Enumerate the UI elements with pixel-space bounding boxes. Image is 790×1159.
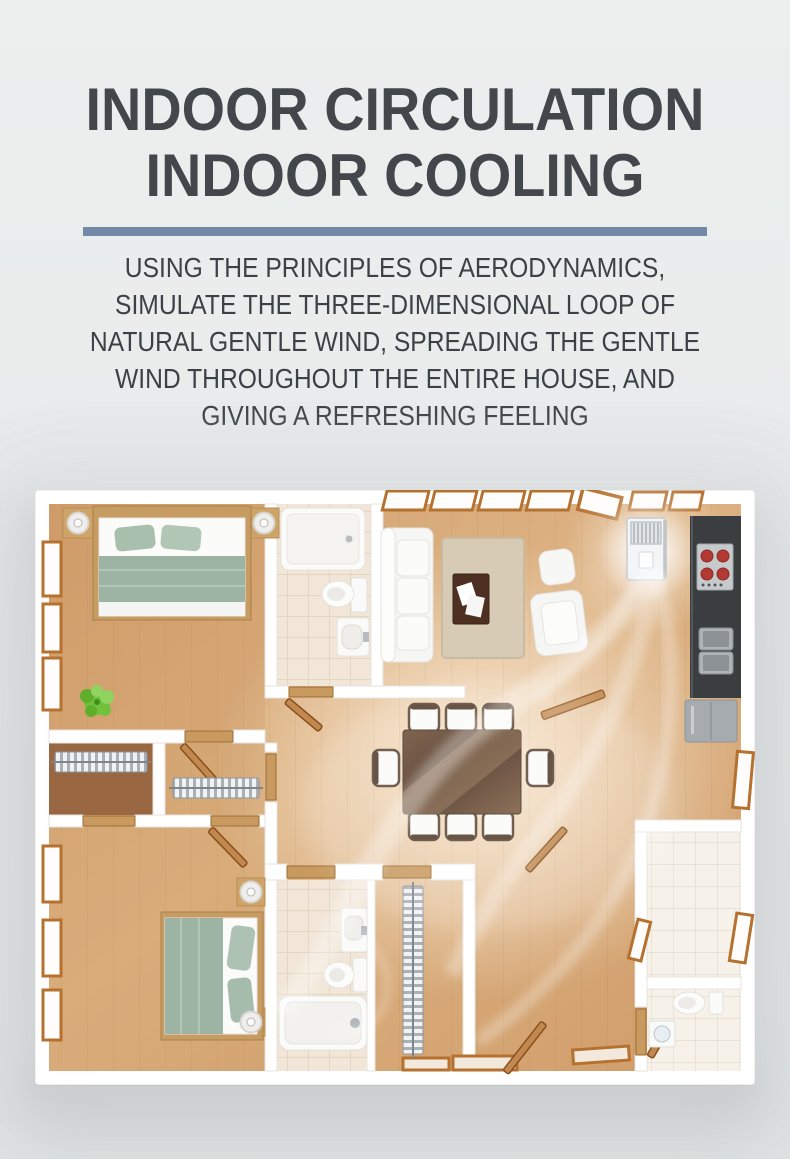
sofa	[381, 528, 433, 662]
window-icon	[43, 846, 61, 902]
description-line: GIVING A REFRESHING FEELING	[47, 397, 742, 434]
bed-master	[93, 506, 251, 620]
title-line-1: INDOOR CIRCULATION	[28, 77, 763, 143]
description-line: NATURAL GENTLE WIND, SPREADING THE GENTL…	[47, 323, 742, 360]
description-line: WIND THROUGHOUT THE ENTIRE HOUSE, AND	[47, 360, 742, 397]
title-line-2: INDOOR COOLING	[28, 143, 763, 209]
kitchen	[685, 516, 741, 742]
toilet-icon	[673, 992, 723, 1014]
window-icon	[43, 542, 61, 596]
page-title: INDOOR CIRCULATION INDOOR COOLING	[28, 77, 763, 209]
description-line: USING THE PRINCIPLES OF AERODYNAMICS,	[47, 249, 742, 286]
title-divider	[83, 227, 707, 236]
shower-drain-icon	[346, 536, 353, 543]
washbasin-icon	[337, 618, 369, 656]
utility-room-floor	[647, 832, 741, 977]
header: INDOOR CIRCULATION INDOOR COOLING USING …	[0, 77, 790, 434]
floor-plan	[35, 490, 755, 1086]
window-icon	[43, 920, 61, 976]
window-icon	[43, 990, 61, 1040]
window-icon	[43, 604, 61, 652]
description: USING THE PRINCIPLES OF AERODYNAMICS, SI…	[47, 249, 742, 434]
stove-icon	[697, 544, 733, 590]
window-icon	[43, 658, 61, 710]
coffee-table	[453, 574, 489, 624]
promo-banner: INDOOR CIRCULATION INDOOR COOLING USING …	[0, 0, 790, 1159]
washbasin-icon	[649, 1021, 675, 1047]
kitchen-cabinet	[685, 700, 737, 742]
description-line: SIMULATE THE THREE-DIMENSIONAL LOOP OF	[47, 286, 742, 323]
